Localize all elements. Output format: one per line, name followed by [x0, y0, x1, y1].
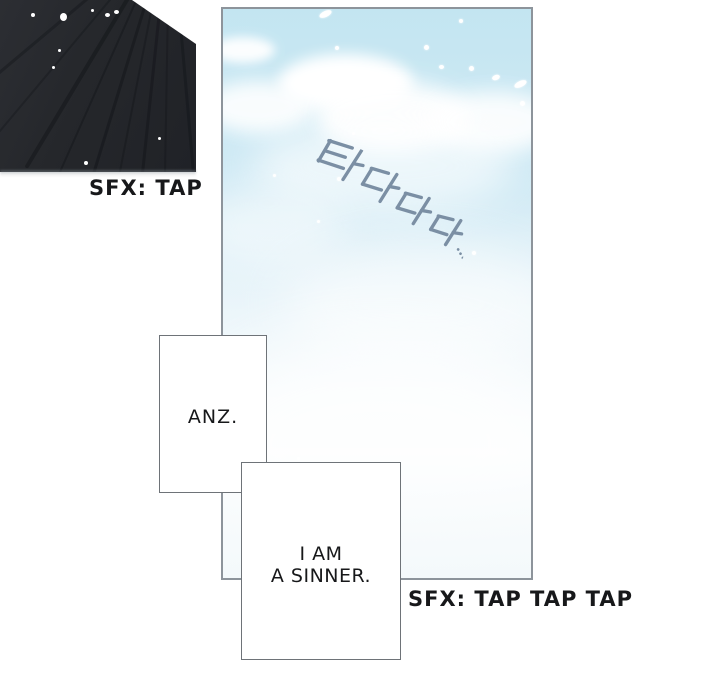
snow-speck — [472, 251, 476, 255]
snow-speck — [335, 46, 339, 50]
snow-speck — [158, 137, 161, 140]
fabric-fold-streak — [163, 0, 170, 172]
fabric-fold-streak — [24, 0, 161, 169]
speech-text-anz: ANZ. — [188, 406, 238, 428]
snow-speck — [91, 9, 94, 12]
snow-speck — [459, 19, 463, 23]
snow-speck — [317, 220, 320, 223]
fabric-fold-streak — [172, 0, 196, 172]
snow-speck — [105, 13, 110, 17]
snow-speck — [424, 45, 429, 50]
snow-speck — [84, 161, 88, 165]
speech-text-sinner-line2: A SINNER. — [271, 565, 371, 587]
snow-speck — [297, 457, 300, 460]
comic-page: { "captions": { "top_sfx": "SFX: TAP", "… — [0, 0, 720, 700]
snow-speck — [58, 49, 61, 52]
dark-fabric-panel — [0, 0, 196, 172]
snow-speck — [60, 13, 67, 21]
fabric-fold-streak — [138, 0, 168, 172]
snow-speck — [31, 13, 35, 17]
snow-speck — [114, 10, 119, 14]
snow-speck — [520, 101, 525, 106]
snow-speck — [352, 132, 355, 135]
sfx-caption-top: SFX: TAP — [89, 176, 203, 200]
snow-speck — [439, 65, 444, 69]
speech-box-sinner: I AM A SINNER. — [241, 462, 401, 660]
sfx-caption-bottom: SFX: TAP TAP TAP — [408, 587, 633, 611]
snow-speck — [52, 66, 55, 69]
fabric-fold-streak — [0, 0, 157, 145]
speech-text-sinner-line1: I AM — [299, 543, 342, 565]
snow-speck — [469, 66, 474, 71]
snow-speck — [273, 174, 276, 177]
